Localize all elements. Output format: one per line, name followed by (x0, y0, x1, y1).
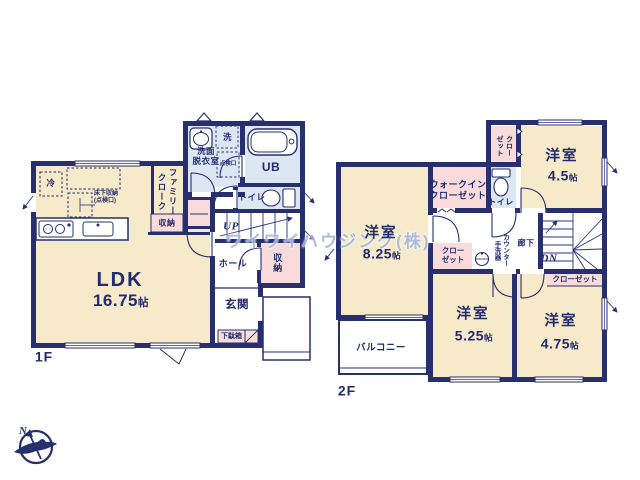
vent-triangle-icons (197, 113, 264, 121)
hall-label: ホール (219, 259, 248, 270)
toilet-1f-label: トイレ (238, 192, 265, 202)
room-4-75-name: 洋室 (545, 313, 578, 330)
room-8-25-name: 洋室 (365, 225, 398, 242)
handwash-basin-icon (476, 252, 489, 265)
room-5-25-name: 洋室 (457, 306, 490, 323)
cloak-storage-label: 収納 (159, 218, 176, 227)
hall-storage-label: 収納 (272, 253, 283, 273)
floorplan-canvas: N ワイワイハウジング(株) 洗面 脱衣室 洗 点検口 UB トイレ UP ホー… (0, 0, 640, 480)
bathtub-icon (248, 129, 297, 155)
room-4-5-size: 4.5帖 (548, 168, 578, 185)
fridge-label: 冷 (46, 178, 55, 188)
shutter-mark-icon (160, 349, 186, 364)
balcony-label: バルコニー (356, 342, 406, 353)
toilet-vestibule (215, 187, 233, 209)
inspection-hatch-label: 点検口 (220, 161, 237, 167)
closet-825-label: クロー ゼット (442, 247, 465, 265)
ldk-size: 16.75帖 (93, 291, 149, 311)
washroom-label: 洗面 脱衣室 (192, 146, 219, 166)
laundry-label: 洗 (223, 132, 232, 142)
floor2-label: 2F (338, 383, 356, 400)
walk-in-closet-label: ウォークイン クローゼット (429, 179, 486, 200)
room-5-25 (433, 274, 512, 377)
alcove (433, 213, 472, 243)
stairs-down-label: DN (541, 253, 558, 266)
toilet-2f-label: トイレ (488, 197, 514, 206)
room-5-25-size: 5.25帖 (455, 328, 493, 345)
compass-north-icon: N (14, 425, 57, 463)
unit-bath-label: UB (262, 160, 280, 174)
counter-basin-label: カウンター 手洗器 (492, 234, 509, 267)
shoe-cabinet-label: 下駄箱 (221, 332, 242, 340)
room-8-25-size: 8.25帖 (363, 246, 401, 263)
room-4-5-name: 洋室 (546, 148, 579, 165)
corridor-label: 廊下 (518, 238, 535, 247)
room-4-75-size: 4.75帖 (541, 336, 579, 353)
ldk-name: LDK (96, 269, 143, 293)
closet-top-label: クロー ゼット (495, 136, 514, 157)
stairs-up-label: UP (223, 221, 239, 234)
kitchen-counter-icon (36, 218, 128, 240)
closet-stairs-label: クローゼット (553, 276, 598, 285)
floor1-label: 1F (35, 349, 53, 366)
compass-n-label: N (18, 425, 28, 437)
toilet-icon-2f (492, 169, 510, 196)
family-cloak-label: ファミリー クローク (156, 168, 178, 216)
underfloor-storage-label: 床下収納 (点検口) (94, 191, 118, 205)
entrance-label: 玄関 (225, 299, 249, 313)
porch (263, 297, 310, 360)
